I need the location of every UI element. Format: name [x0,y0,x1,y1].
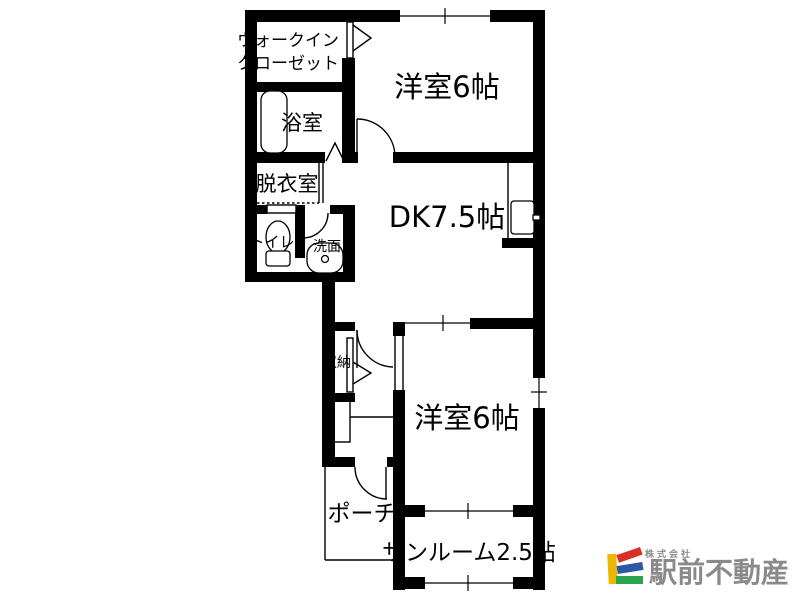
wall-washbasin-right [343,213,355,273]
wall-kitchen-bottom [502,238,545,248]
room-label-storage: 収納 [323,355,351,371]
wall-closet-bedroom-divider [342,58,355,163]
door-panel-wic [347,22,353,58]
wall-dk-bedroom2-divider [470,318,533,329]
room-label-washbasin: 洗面 [313,239,341,255]
wall-toilet-top-left [245,205,267,214]
door-arc-entrance [355,467,387,499]
wall-bedroom1-dk-left [342,152,358,163]
wall-sunroom-bottom-right [513,577,545,589]
wall-bedroom1-dk-right [393,152,533,163]
room-label-bedroom-top: 洋室6帖 [394,70,499,104]
room-label-sunroom: サンルーム2.5帖 [382,540,556,566]
washbasin-drain-icon [322,256,329,263]
room-label-toilet: トイレ [249,233,294,251]
wall-sunroom-bottom-left [393,577,425,589]
room-label-bathroom: 浴室 [281,111,323,135]
door-fold-bath-icon [326,143,344,161]
room-label-walk-in-closet: ウォークイン [237,31,339,51]
door-fold-storage-icon [353,362,371,384]
wall-entrance-left [322,457,355,467]
wall-sunroom-top-right [513,505,537,517]
kitchen-sink-icon [511,201,534,234]
door-toilet [267,205,296,213]
room-label-porch: ポーチ [328,501,397,527]
wall-top-left [245,10,400,22]
wall-toilet-washbasin-divider [295,213,305,258]
logo-bar-blue [617,562,644,574]
wall-bedroom2-left-stub [393,322,405,336]
wall-left-column-bottom [245,272,355,282]
kitchen-handle-icon [533,215,540,220]
door-arc-bedroom1 [357,119,395,157]
door-arc-washbasin [303,213,328,238]
floor-plan: ウォークイン クローゼット 洋室6帖 浴室 脱衣室 トイレ 洗面 DK7.5帖 … [0,0,800,600]
wall-entrance-right [387,457,405,467]
room-label-walk-in-closet: クローゼット [237,54,339,74]
logo-company-name: 駅前不動産 [649,556,789,589]
wall-wic-bath-divider [245,82,342,92]
company-logo: 株式会社 駅前不動産 [607,547,789,589]
door-fold-wic-icon [353,25,371,51]
toilet-tank-icon [266,251,290,266]
room-label-dining-kitchen: DK7.5帖 [389,200,505,234]
room-label-dressing-room: 脱衣室 [256,172,319,196]
wall-storage-top [328,322,355,331]
wall-toilet-washbasin-post [296,205,305,214]
wall-bath-dressing-divider [245,152,325,163]
logo-bar-green [616,576,643,584]
wall-right-upper [533,10,545,378]
wall-washbasin-top-right [330,205,355,214]
door-arc-hall [357,330,393,367]
logo-mark-icon [607,547,643,584]
logo-bar-red [616,547,642,563]
room-label-bedroom-bottom: 洋室6帖 [414,401,519,435]
wall-sunroom-top-left [393,505,425,517]
